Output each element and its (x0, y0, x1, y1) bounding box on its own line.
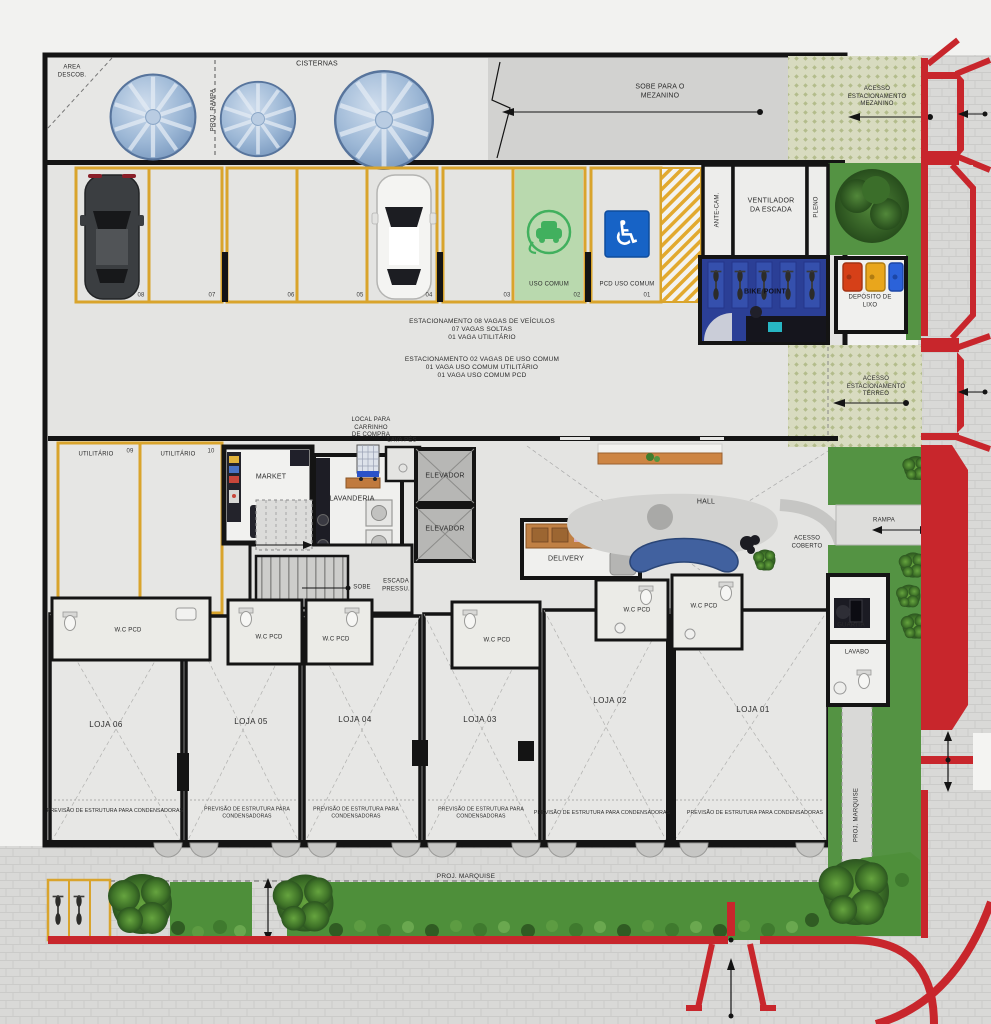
floor-plan-graphics: ♿ (0, 0, 991, 1024)
note-loja-04: PREVISÃO DE ESTRUTURA PARA CONDENSADORAS (313, 807, 399, 820)
pcd-sign-icon: ♿ (605, 211, 649, 257)
label-sobe-mezanino: SOBE PARA O MEZANINO (635, 83, 684, 101)
note-loja-01: PREVISÃO DE ESTRUTURA PARA CONDENSADORAS (687, 810, 823, 817)
note-loja-06: PREVISÃO DE ESTRUTURA PARA CONDENSADORAS (47, 808, 183, 815)
label-lavanderia: LAVANDERIA (329, 496, 374, 505)
cistern-3 (335, 71, 433, 169)
label-wc-pcd-3: W.C PCD (322, 636, 349, 644)
label-acesso-coberto: ACESSO COBERTO (792, 536, 823, 551)
car-dark (80, 174, 144, 299)
parking-summary-2: ESTACIONAMENTO 02 VAGAS DE USO COMUM 01 … (405, 356, 559, 380)
label-wc-pcd-4: W.C PCD (483, 637, 510, 645)
stall-number-03: 03 (503, 292, 510, 300)
label-deposito-lixo: DEPÓSITO DE LIXO (848, 295, 891, 310)
room-wc-3 (306, 600, 372, 664)
room-bike-point (700, 257, 828, 343)
label-proj-rampa: PROJ. RAMPA (210, 89, 218, 131)
label-lava-pes: LAVA PÉS (387, 437, 416, 445)
shopping-cart-icon (357, 445, 379, 481)
label-acesso-terreo: ACESSO ESTACIONAMENTO TÉRREO (847, 376, 906, 399)
label-loja-06: LOJA 06 (89, 720, 123, 730)
label-elevador-2: ELEVADOR (425, 526, 464, 535)
stall-number-04: 04 (425, 292, 432, 300)
label-utilitario-09: UTILITÁRIO (78, 451, 113, 459)
label-sobe: SOBE (353, 584, 370, 592)
label-loja-05: LOJA 05 (234, 717, 268, 727)
stall-number-06: 06 (287, 292, 294, 300)
label-pleno: PLENO (813, 196, 821, 217)
car-white (372, 175, 436, 299)
label-cisternas: CISTERNAS (296, 61, 338, 70)
label-wc-pcd-1: W.C PCD (114, 627, 141, 635)
stall-number-10: 10 (207, 448, 214, 456)
label-ventilador: VENTILADOR DA ESCADA (748, 197, 795, 215)
middle-walls (48, 436, 838, 441)
stall-number-09: 09 (126, 448, 133, 456)
svg-text:♿: ♿ (612, 214, 642, 254)
label-loja-03: LOJA 03 (463, 715, 497, 725)
stall-number-08: 08 (137, 292, 144, 300)
tree (835, 169, 909, 243)
label-utilitario-10: UTILITÁRIO (160, 451, 195, 459)
label-ante-cam: ANTE-CAM. (714, 193, 722, 228)
label-market: MARKET (256, 474, 286, 483)
label-proj-marquise-bottom: PROJ. MARQUISE (437, 873, 495, 881)
label-lavabo: LAVABO (845, 649, 869, 657)
label-wc-pcd-2: W.C PCD (255, 634, 282, 642)
label-area-descob: AREA DESCOB. (58, 65, 86, 80)
label-guarita: GUARITA (837, 622, 865, 630)
label-proj-marquise-right: PROJ. MARQUISE (853, 788, 861, 842)
stall-number-07: 07 (208, 292, 215, 300)
label-elevador-1: ELEVADOR (425, 473, 464, 482)
label-wc-pcd-5: W.C PCD (623, 607, 650, 615)
label-uso-comum: USO COMUM (529, 281, 569, 289)
label-bike-point: BIKE POINT (744, 289, 786, 298)
label-carrinho: LOCAL PARA CARRINHO DE COMPRA (351, 417, 390, 440)
label-loja-02: LOJA 02 (593, 696, 627, 706)
label-acesso-mezanino: ACESSO ESTACIONAMENTO MEZANINO (848, 86, 907, 109)
cistern-2 (221, 82, 295, 156)
label-hall: HALL (697, 499, 715, 508)
label-escada-pressu: ESCADA PRESSU. (382, 579, 410, 594)
label-rampa: RAMPA (873, 517, 895, 525)
utilitario-stalls (58, 443, 222, 613)
cistern-room (45, 56, 922, 169)
cistern-1 (111, 75, 196, 160)
room-guarita (828, 575, 888, 642)
note-loja-05: PREVISÃO DE ESTRUTURA PARA CONDENSADORAS (204, 807, 290, 820)
label-loja-04: LOJA 04 (338, 715, 372, 725)
label-wc-pcd-6: W.C PCD (690, 603, 717, 611)
label-pcd-uso-comum: PCD USO COMUM (600, 281, 655, 289)
label-loja-01: LOJA 01 (736, 705, 770, 715)
stall-number-02: 02 (573, 292, 580, 300)
elevators (416, 449, 474, 561)
parking-summary-1: ESTACIONAMENTO 08 VAGAS DE VEÍCULOS 07 V… (409, 318, 555, 342)
note-loja-02: PREVISÃO DE ESTRUTURA PARA CONDENSADORAS (534, 810, 670, 817)
trash-bins (843, 263, 903, 291)
stall-number-05: 05 (356, 292, 363, 300)
stall-number-01: 01 (643, 292, 650, 300)
note-loja-03: PREVISÃO DE ESTRUTURA PARA CONDENSADORAS (438, 807, 524, 820)
label-delivery: DELIVERY (548, 556, 584, 565)
floor-plan: ♿ (0, 0, 991, 1024)
